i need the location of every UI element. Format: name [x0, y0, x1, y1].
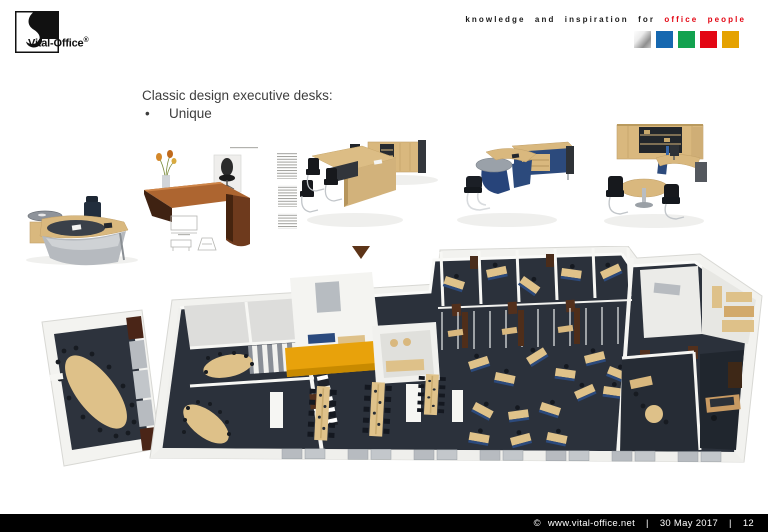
figure-product-sheet: [142, 128, 300, 262]
brand-square-silver: [634, 31, 651, 48]
brand-color-squares: [465, 31, 746, 48]
footer-page-number: 12: [743, 518, 754, 529]
footer-separator: |: [729, 518, 732, 529]
title-block: Classic design executive desks: •Unique: [142, 87, 333, 122]
slide-title: Classic design executive desks:: [142, 87, 333, 104]
figure-desk-render-3: [592, 118, 748, 246]
footer-url: www.vital-office.net: [548, 518, 635, 529]
bullet-symbol: •: [142, 105, 169, 122]
figure-desk-render-1: [300, 128, 448, 246]
footer-separator: |: [646, 518, 649, 529]
tagline-accent: office people: [664, 15, 746, 24]
registered-mark: ®: [83, 37, 88, 44]
footer-bar: © www.vital-office.net | 30 May 2017 | 1…: [0, 514, 768, 532]
figure-floor-plan: [0, 246, 768, 486]
figure-desk-render-2: [452, 128, 588, 246]
slide-canvas: Vital-Office® knowledge and inspiration …: [0, 0, 768, 532]
tagline-text: knowledge and inspiration for office peo…: [465, 15, 746, 24]
footer-copyright: ©: [534, 518, 541, 529]
brand-square-green: [678, 31, 695, 48]
brand-square-amber: [722, 31, 739, 48]
meeting-room-annex: [42, 310, 160, 466]
logo-text: Vital-Office®: [28, 37, 88, 50]
vital-office-logo: Vital-Office®: [15, 11, 145, 56]
brand-tagline: knowledge and inspiration for office peo…: [465, 15, 746, 48]
brand-square-blue: [656, 31, 673, 48]
main-floor: [150, 246, 762, 462]
bullet-line: •Unique: [142, 105, 333, 122]
bullet-text: Unique: [169, 106, 212, 121]
brand-square-red: [700, 31, 717, 48]
footer-date: 30 May 2017: [660, 518, 718, 529]
